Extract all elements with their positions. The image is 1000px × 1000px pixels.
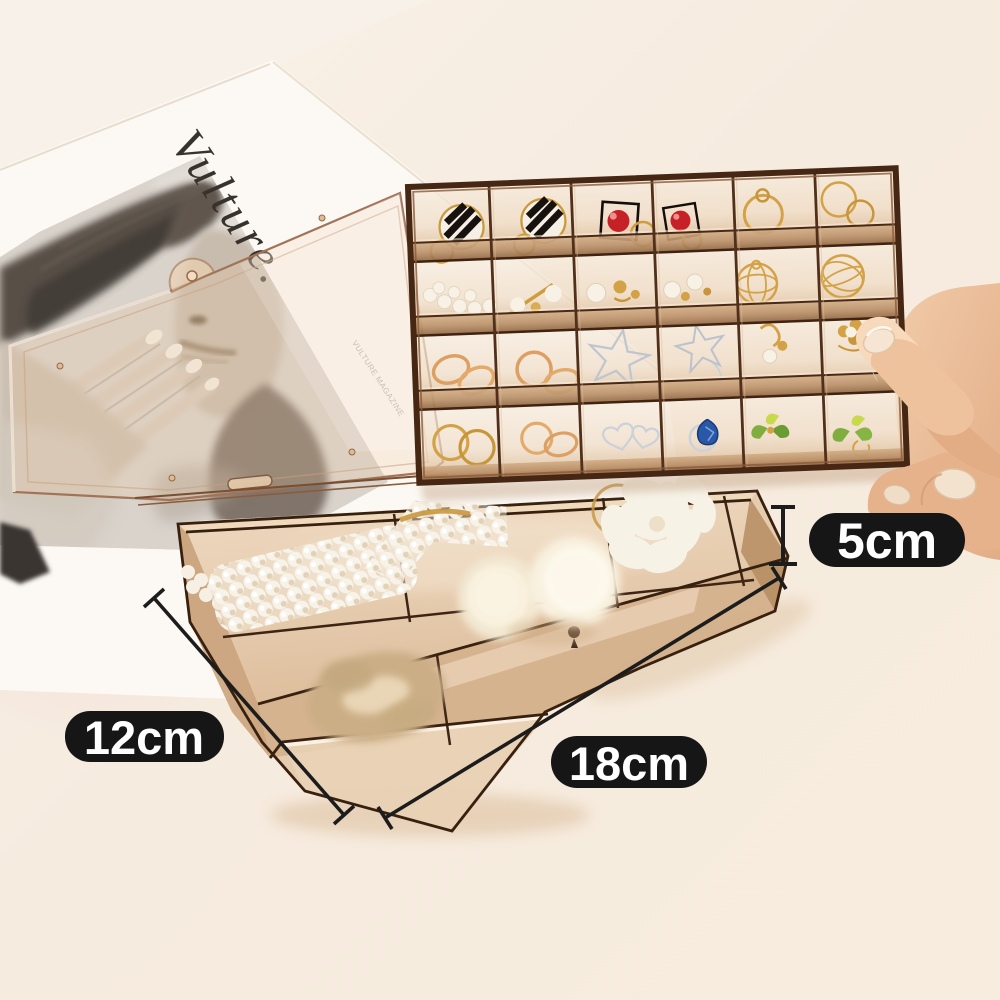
svg-text:5cm: 5cm (837, 513, 937, 569)
svg-text:18cm: 18cm (569, 737, 689, 790)
svg-text:12cm: 12cm (84, 711, 204, 764)
